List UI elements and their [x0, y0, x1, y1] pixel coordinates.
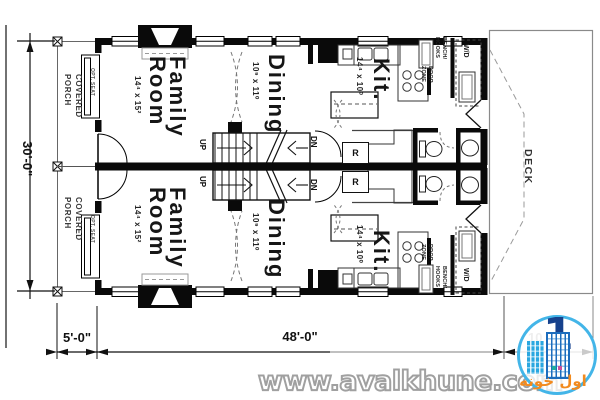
deck-label: DECK [522, 149, 534, 185]
bath-sink [462, 140, 479, 156]
staircase [213, 130, 310, 166]
covered-porch-label: COVERED PORCH [62, 74, 84, 118]
bench-hooks-label: BENCH/ HOOKS [433, 266, 447, 288]
hall-door-arc [315, 131, 341, 157]
arched-opening-dashes [231, 52, 242, 122]
dimension-text-house: 48'-0" [255, 329, 345, 344]
wall-stub [228, 122, 242, 133]
dimension-text-depth: 30'-0" [20, 141, 35, 176]
room-size-kitchen: 14⁴ x 10⁰ [355, 57, 364, 95]
stairs-up-label: UP [198, 139, 207, 150]
wall-stub [308, 38, 313, 64]
cooktop-burner [403, 71, 411, 79]
fireplace [138, 25, 192, 59]
stairs-up-label: UP [198, 176, 207, 187]
entry-door-arc [94, 132, 127, 164]
room-size-family: 14⁴ x 15² [133, 205, 142, 243]
stairs-down-label: DN [309, 179, 318, 191]
bath-wall [456, 128, 461, 166]
logo-brand-text: اول خونه [507, 372, 599, 390]
room-label-kitchen: Kit. [371, 230, 391, 273]
room-size-dining: 10⁹ x 11⁰ [251, 213, 260, 251]
room-label-dining: Dining [266, 54, 286, 134]
opt-seat-label: OPT. SEAT [89, 215, 95, 243]
bench [419, 40, 433, 68]
opt-seat-label: OPT. SEAT [89, 68, 95, 96]
logo-dot-icon [552, 366, 556, 370]
watermark-url: www.avalkhune.com [258, 366, 528, 397]
room-size-kitchen: 14⁴ x 10⁰ [355, 225, 364, 263]
floor-plan-page: COVERED PORCH OPT. SEAT Family Room 14⁴ … [0, 0, 600, 400]
deck-outline [490, 31, 593, 294]
covered-porch-label: COVERED PORCH [62, 197, 84, 241]
party-wall [57, 163, 487, 171]
stair-break-lines [265, 130, 287, 166]
stairs-down-label: DN [309, 136, 318, 148]
roof-overhang-dashes [490, 50, 524, 283]
stair-direction-arrows [217, 141, 308, 155]
rear-counter [368, 130, 412, 165]
logo-dot-icon [558, 366, 562, 370]
back-door [466, 100, 488, 129]
dimension-text-porch: 5'-0" [55, 330, 99, 345]
drop-zone-label: DROP ZONE [419, 66, 433, 83]
bench-hooks-label: BENCH/ HOOKS [433, 37, 447, 59]
room-size-dining: 10⁹ x 11⁰ [251, 62, 260, 100]
chimney-block [318, 44, 338, 63]
bath-wall [413, 128, 418, 166]
room-label-kitchen: Kit. [371, 58, 391, 101]
closet-wall [451, 38, 455, 98]
washer-dryer-label: W/D [462, 268, 469, 282]
toilet [420, 141, 443, 157]
washer-dryer-label: W/D [462, 44, 469, 58]
logo-building-icon [527, 341, 544, 374]
room-label-family: Family Room [147, 56, 187, 138]
bath-door-dash [440, 132, 454, 148]
room-label-family: Family Room [147, 187, 187, 269]
room-size-family: 14⁴ x 15² [133, 76, 142, 114]
refrigerator-label: R [342, 171, 369, 193]
refrigerator-label: R [342, 142, 369, 164]
drop-zone-label: DROP ZONE [419, 244, 433, 261]
room-label-dining: Dining [266, 199, 286, 279]
brand-logo: 1 اول خونه [505, 310, 600, 400]
